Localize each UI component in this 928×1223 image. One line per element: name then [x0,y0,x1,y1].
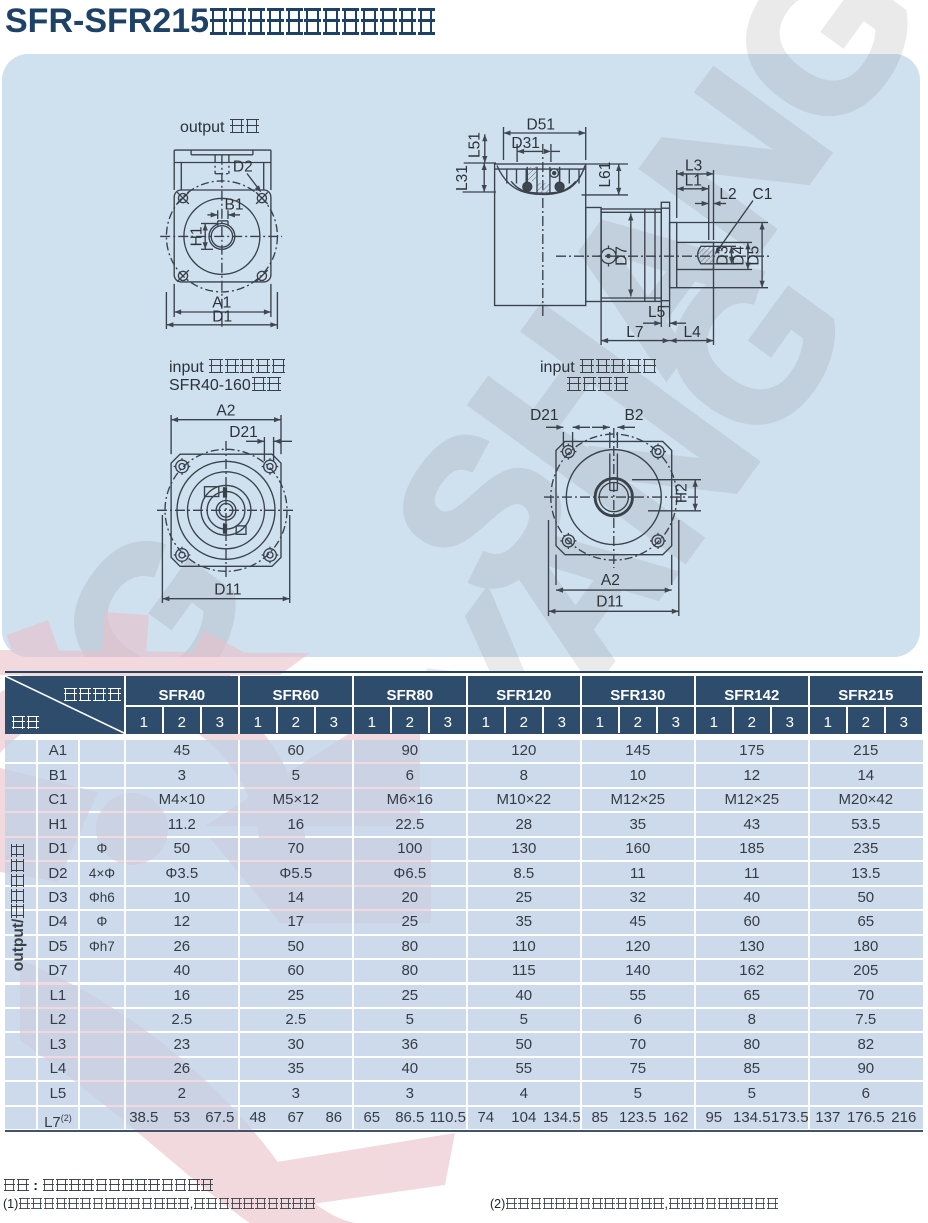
svg-text:L61: L61 [597,162,614,188]
svg-text:D21: D21 [530,407,558,424]
svg-text:D3: D3 [714,246,731,266]
svg-text:L51: L51 [467,132,484,158]
svg-text:D21: D21 [229,424,257,441]
svg-text:L2: L2 [719,186,736,203]
svg-text:A2: A2 [601,572,620,589]
svg-text:H1: H1 [188,226,205,246]
svg-text:D11: D11 [214,581,241,598]
svg-text:B2: B2 [625,407,644,424]
svg-text:B1: B1 [225,197,244,214]
svg-text:D5: D5 [745,246,762,266]
svg-text:C1: C1 [753,186,773,203]
svg-text:D2: D2 [233,159,253,176]
svg-text:D11: D11 [596,594,623,611]
svg-text:D1: D1 [212,308,232,325]
svg-text:L7: L7 [626,324,643,341]
svg-text:D51: D51 [527,117,555,134]
svg-text:L31: L31 [454,165,471,191]
svg-text:L5: L5 [648,304,665,321]
svg-text:D31: D31 [511,135,539,152]
svg-text:A2: A2 [216,403,235,420]
svg-text:L4: L4 [684,324,702,341]
svg-text:H2: H2 [674,483,691,503]
svg-text:L1: L1 [685,173,702,190]
